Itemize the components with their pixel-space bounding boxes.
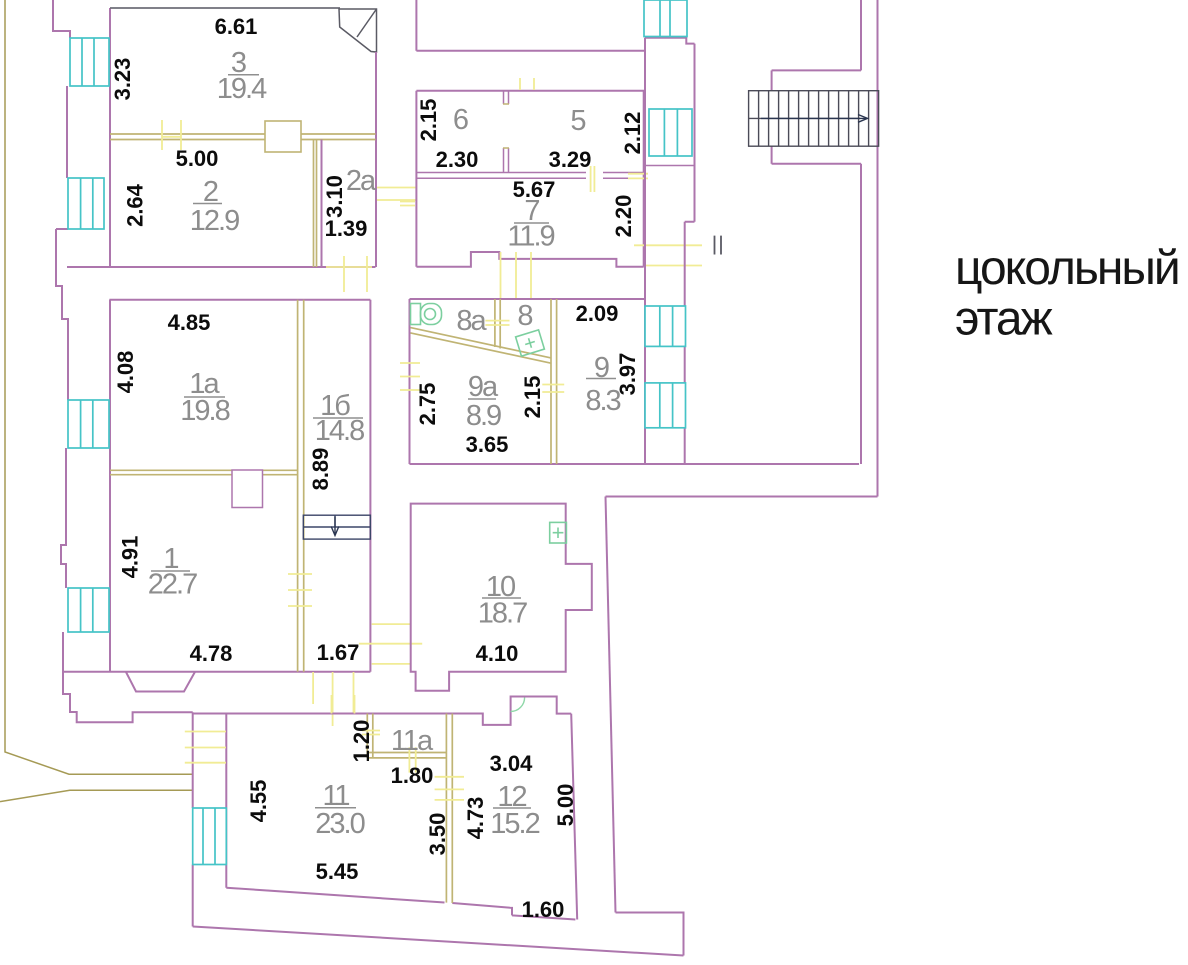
svg-text:5.67: 5.67 (513, 177, 556, 202)
svg-text:2.64: 2.64 (123, 183, 148, 227)
svg-text:3.97: 3.97 (615, 353, 640, 396)
svg-text:2.75: 2.75 (415, 383, 440, 426)
svg-text:3.10: 3.10 (322, 175, 347, 218)
svg-text:2.30: 2.30 (436, 147, 479, 172)
svg-text:этаж: этаж (955, 293, 1053, 346)
svg-text:5.45: 5.45 (316, 859, 359, 884)
svg-text:цокольный: цокольный (955, 242, 1179, 295)
svg-text:8.89: 8.89 (308, 448, 333, 491)
svg-text:3.04: 3.04 (490, 751, 534, 776)
svg-text:19.4: 19.4 (217, 73, 267, 105)
svg-text:1.20: 1.20 (349, 720, 374, 763)
svg-text:5: 5 (570, 105, 585, 137)
svg-text:2.12: 2.12 (620, 112, 645, 155)
svg-text:1.80: 1.80 (391, 763, 434, 788)
svg-text:4.78: 4.78 (190, 641, 233, 666)
svg-text:1.60: 1.60 (522, 897, 565, 922)
svg-text:8.9: 8.9 (466, 400, 501, 432)
svg-text:18.7: 18.7 (478, 598, 527, 630)
svg-text:15.2: 15.2 (490, 808, 539, 840)
svg-text:6: 6 (453, 104, 468, 136)
svg-text:14.8: 14.8 (315, 415, 364, 447)
svg-text:23.0: 23.0 (315, 808, 364, 840)
svg-text:2.09: 2.09 (576, 301, 619, 326)
svg-text:6.61: 6.61 (215, 14, 258, 39)
svg-text:11.9: 11.9 (507, 221, 554, 253)
svg-text:8: 8 (517, 300, 532, 332)
svg-text:5.00: 5.00 (553, 784, 578, 827)
svg-text:4.10: 4.10 (476, 641, 519, 666)
svg-text:4.91: 4.91 (118, 536, 143, 579)
svg-text:4.73: 4.73 (463, 797, 488, 840)
svg-text:2.20: 2.20 (611, 195, 636, 238)
svg-text:2a: 2a (346, 165, 377, 197)
svg-text:1.67: 1.67 (317, 640, 360, 665)
svg-text:19.8: 19.8 (180, 395, 229, 427)
svg-text:8a: 8a (456, 305, 487, 337)
svg-text:3.29: 3.29 (549, 147, 592, 172)
svg-text:9a: 9a (468, 371, 499, 403)
svg-text:4.85: 4.85 (168, 310, 211, 335)
svg-text:11a: 11a (391, 725, 434, 757)
svg-text:4.55: 4.55 (246, 780, 271, 823)
svg-text:22.7: 22.7 (148, 569, 197, 601)
svg-text:2.15: 2.15 (416, 99, 441, 142)
svg-text:2.15: 2.15 (520, 376, 545, 419)
svg-text:5.00: 5.00 (176, 146, 219, 171)
svg-text:3.23: 3.23 (110, 58, 135, 101)
svg-text:1.39: 1.39 (325, 216, 368, 241)
svg-text:4.08: 4.08 (113, 351, 138, 394)
svg-text:12.9: 12.9 (190, 205, 239, 237)
svg-text:3.65: 3.65 (466, 432, 509, 457)
svg-text:3.50: 3.50 (425, 813, 450, 856)
